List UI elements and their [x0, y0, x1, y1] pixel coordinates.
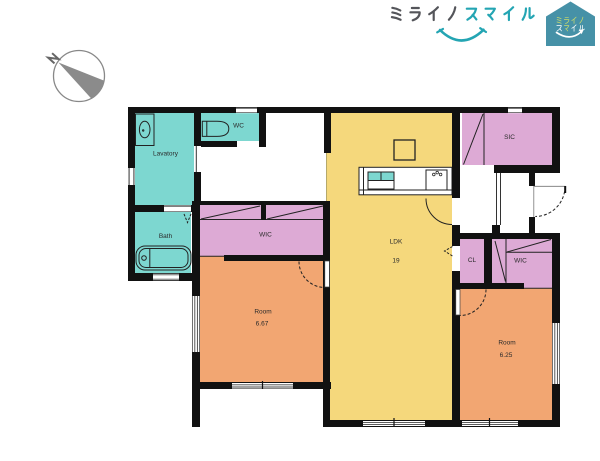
- svg-text:19: 19: [392, 258, 400, 265]
- svg-text:Room: Room: [254, 309, 271, 316]
- svg-text:Lavatory: Lavatory: [153, 151, 179, 158]
- svg-text:LDK: LDK: [390, 239, 403, 246]
- svg-text:Room: Room: [498, 340, 515, 347]
- svg-text:6.67: 6.67: [256, 321, 269, 328]
- svg-text:SIC: SIC: [504, 134, 515, 141]
- svg-text:Bath: Bath: [159, 233, 173, 240]
- svg-text:WC: WC: [233, 123, 244, 130]
- svg-text:6.25: 6.25: [500, 352, 513, 359]
- svg-text:WIC: WIC: [514, 258, 527, 265]
- svg-text:CL: CL: [468, 257, 477, 264]
- svg-text:WIC: WIC: [259, 232, 272, 239]
